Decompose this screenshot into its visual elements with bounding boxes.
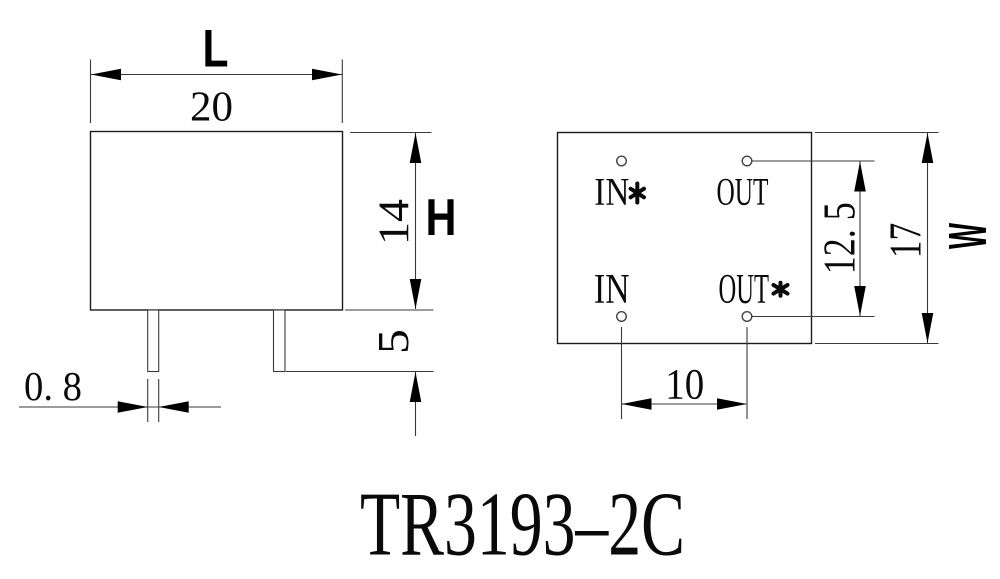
svg-text:20: 20 <box>190 85 233 131</box>
svg-text:0. 8: 0. 8 <box>24 363 82 409</box>
svg-text:TR3193–2C: TR3193–2C <box>360 473 685 575</box>
svg-text:IN: IN <box>594 171 629 214</box>
svg-text:OUT: OUT <box>719 267 770 313</box>
svg-text:5: 5 <box>369 329 418 354</box>
svg-text:14: 14 <box>371 199 418 245</box>
svg-text:W: W <box>938 223 998 249</box>
svg-text:OUT: OUT <box>717 171 769 214</box>
svg-text:10: 10 <box>665 362 704 409</box>
svg-text:IN: IN <box>594 267 630 313</box>
svg-text:17: 17 <box>881 223 931 259</box>
svg-text:12. 5: 12. 5 <box>815 202 865 274</box>
svg-text:L: L <box>203 20 229 79</box>
svg-text:H: H <box>426 189 457 247</box>
